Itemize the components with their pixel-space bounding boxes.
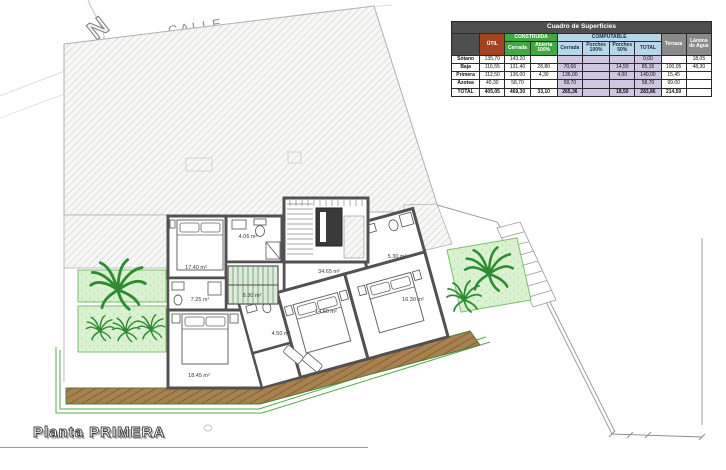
room-label: 5.30 m²: [388, 254, 407, 260]
col-lamina: Lámina de Agua: [686, 33, 711, 55]
room-label: 7.25 m²: [191, 297, 210, 303]
title-underline: [0, 447, 368, 448]
dimension-line: [609, 431, 705, 440]
garden-left: [78, 260, 166, 352]
nightstand: [172, 314, 180, 323]
bed-icon: [182, 314, 228, 364]
site-boundary: [437, 205, 702, 434]
room-label: 14.60 m²: [315, 309, 337, 315]
table-title: Cuadro de Superficies: [452, 22, 712, 34]
room-label: 34.65 m²: [318, 269, 340, 275]
bed-icon: [177, 220, 223, 270]
areas-table: Cuadro de Superficies ÚTIL CONSTRUIDA CO…: [451, 21, 712, 97]
nightstand: [230, 314, 238, 323]
table-row: Baja 116,55 131,40 28,80 70,66 14,50 85,…: [452, 63, 712, 71]
col-cons-cerrada: Cerrada: [505, 42, 530, 56]
group-construida: CONSTRUIDA: [505, 33, 557, 41]
col-cons-abierta: Abierta 100%: [530, 42, 557, 56]
stair-core: [284, 198, 368, 262]
floor-plan-sheet: N CALLE: [0, 0, 726, 470]
col-comp-cerrada: Cerrada: [557, 42, 582, 56]
room-label: 4.50 m²: [272, 331, 291, 337]
room-label: 16.30 m²: [402, 297, 424, 303]
col-porches50: Porches 50%: [610, 42, 635, 56]
table-row: Azotea 40,30 58,70 58,70 58,70 99,00: [452, 80, 712, 88]
room-label: 8.30 m²: [243, 293, 262, 299]
room-label: 17.40 m²: [185, 265, 207, 271]
table-row: Sótano 135,70 143,20 0,00 18,05: [452, 55, 712, 63]
nightstand: [170, 220, 175, 228]
table-row-total: TOTAL 405,05 469,30 33,10 265,36 18,50 2…: [452, 88, 712, 96]
table-row: Primera 112,50 136,00 4,30 136,00 4,00 1…: [452, 72, 712, 80]
elevator-shaft: [316, 208, 342, 246]
col-comp-total: TOTAL: [635, 42, 661, 56]
group-computable: COMPUTABLE: [557, 33, 661, 41]
sheet-title: Planta PRIMERA: [33, 424, 165, 441]
garden-right: [447, 238, 531, 312]
under-stair-hatch: [344, 216, 364, 258]
col-util: ÚTIL: [480, 33, 505, 55]
col-porches100: Porches 100%: [582, 42, 609, 56]
room-label: 18.45 m²: [188, 373, 210, 379]
room-label: 4.06 m²: [239, 234, 258, 240]
survey-mark: [204, 425, 212, 431]
corner-cell: [452, 33, 480, 55]
col-terraza: Terraza: [661, 33, 686, 55]
